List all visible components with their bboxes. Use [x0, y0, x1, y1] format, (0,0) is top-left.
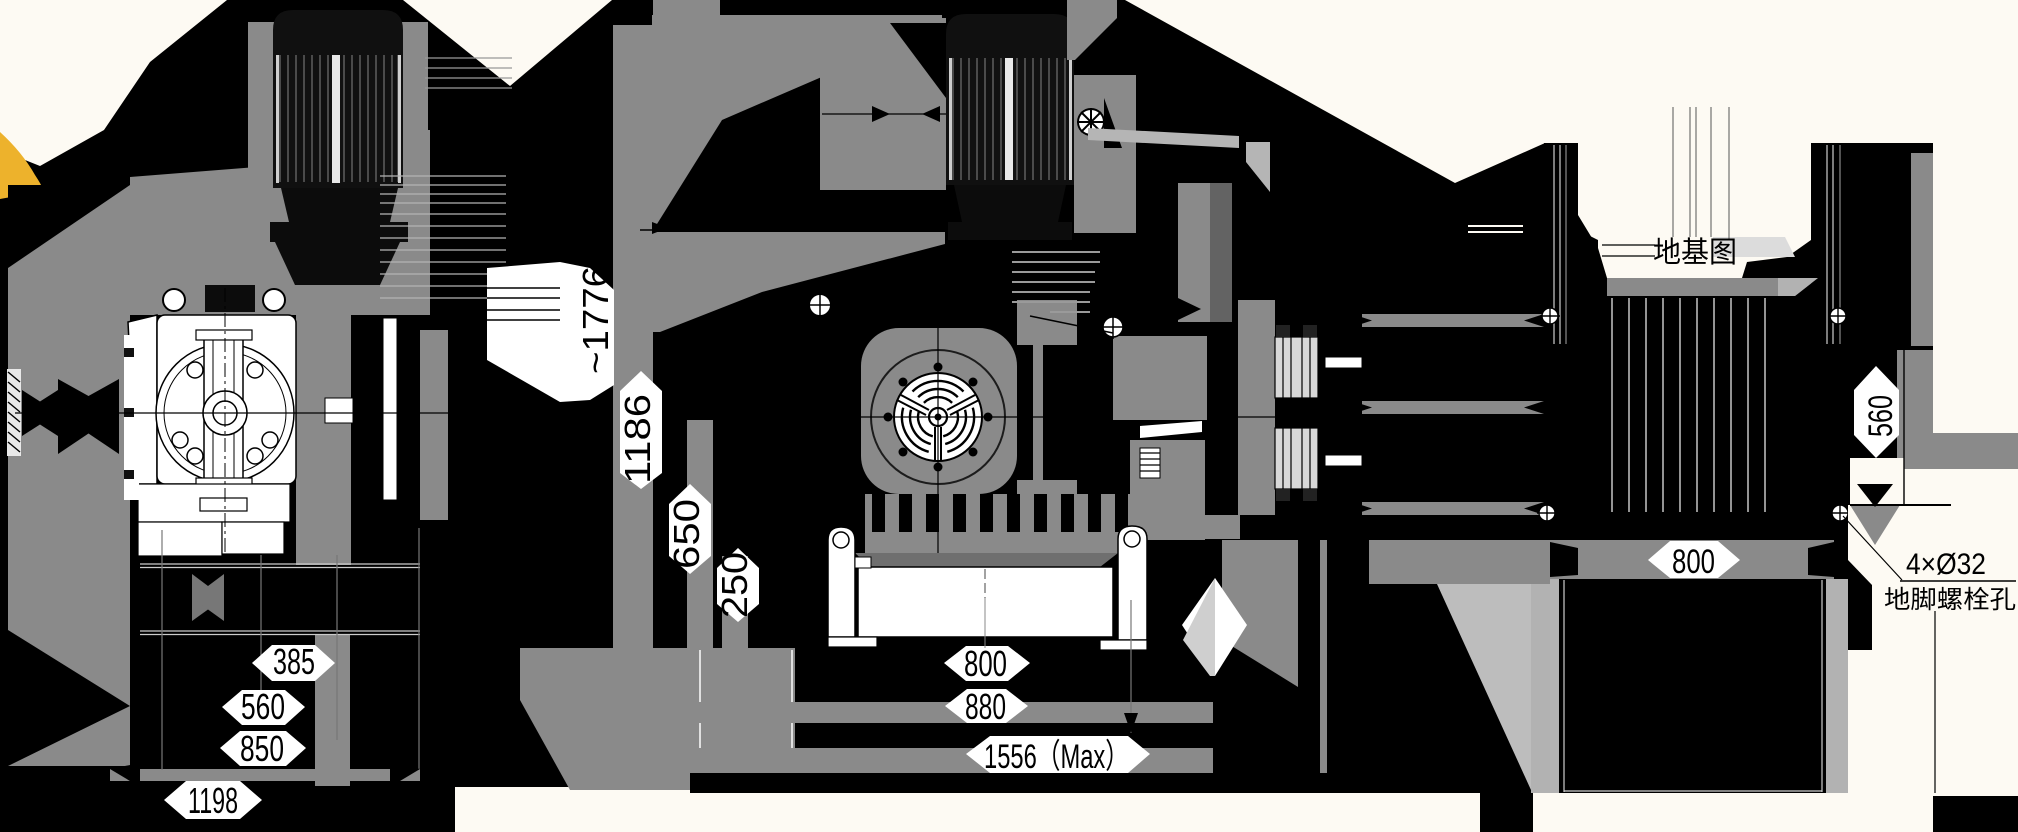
svg-text:4×Ø32: 4×Ø32 — [1906, 548, 1986, 581]
svg-text:560: 560 — [1862, 395, 1900, 437]
svg-text:地脚螺栓孔: 地脚螺栓孔 — [1884, 586, 2016, 614]
svg-text:650: 650 — [666, 499, 707, 569]
svg-text:1198: 1198 — [188, 780, 238, 821]
svg-text:880: 880 — [965, 686, 1006, 727]
svg-text:800: 800 — [964, 643, 1007, 684]
svg-text:850: 850 — [240, 728, 284, 769]
svg-text:1186: 1186 — [617, 394, 658, 484]
svg-text:800: 800 — [1672, 543, 1715, 581]
svg-text:385: 385 — [273, 641, 315, 682]
svg-text:~1776: ~1776 — [575, 266, 616, 374]
svg-text:560: 560 — [241, 686, 285, 727]
svg-text:地基图: 地基图 — [1653, 236, 1737, 269]
svg-text:1556（Max）: 1556（Max） — [984, 738, 1129, 776]
svg-text:250: 250 — [714, 552, 755, 618]
